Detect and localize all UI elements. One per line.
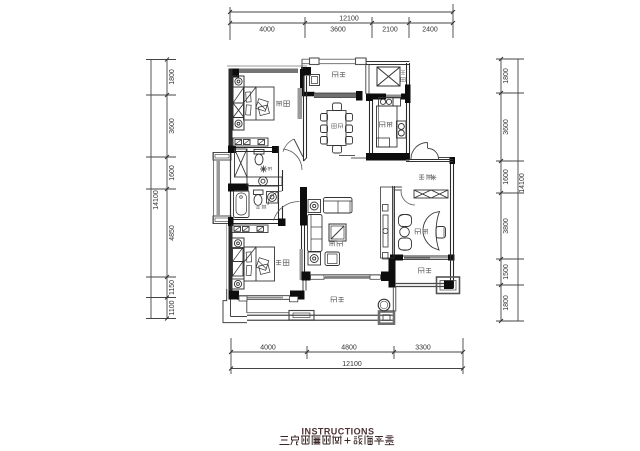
svg-text:2100: 2100 — [382, 27, 398, 34]
svg-text:1800: 1800 — [503, 68, 510, 84]
svg-text:14100: 14100 — [153, 190, 160, 210]
svg-text:3800: 3800 — [503, 218, 510, 234]
svg-text:2400: 2400 — [422, 27, 438, 34]
svg-text:1800: 1800 — [503, 295, 510, 311]
svg-text:3600: 3600 — [330, 27, 346, 34]
svg-text:12100: 12100 — [342, 361, 362, 368]
svg-text:14100: 14100 — [519, 173, 526, 193]
svg-text:4000: 4000 — [259, 27, 275, 34]
svg-text:4800: 4800 — [341, 345, 357, 352]
svg-text:3600: 3600 — [169, 118, 176, 134]
svg-text:1600: 1600 — [169, 165, 176, 181]
svg-text:1150: 1150 — [169, 280, 176, 295]
svg-text:3300: 3300 — [415, 345, 431, 352]
svg-text:4850: 4850 — [169, 225, 176, 241]
svg-text:1100: 1100 — [169, 300, 176, 315]
svg-text:1800: 1800 — [169, 69, 176, 85]
svg-text:12100: 12100 — [339, 16, 359, 23]
svg-text:3600: 3600 — [503, 119, 510, 135]
svg-text:4000: 4000 — [260, 345, 276, 352]
svg-text:1600: 1600 — [503, 169, 510, 185]
svg-text:1500: 1500 — [503, 264, 510, 280]
svg-text:INSTRUCTIONS: INSTRUCTIONS — [302, 427, 375, 437]
